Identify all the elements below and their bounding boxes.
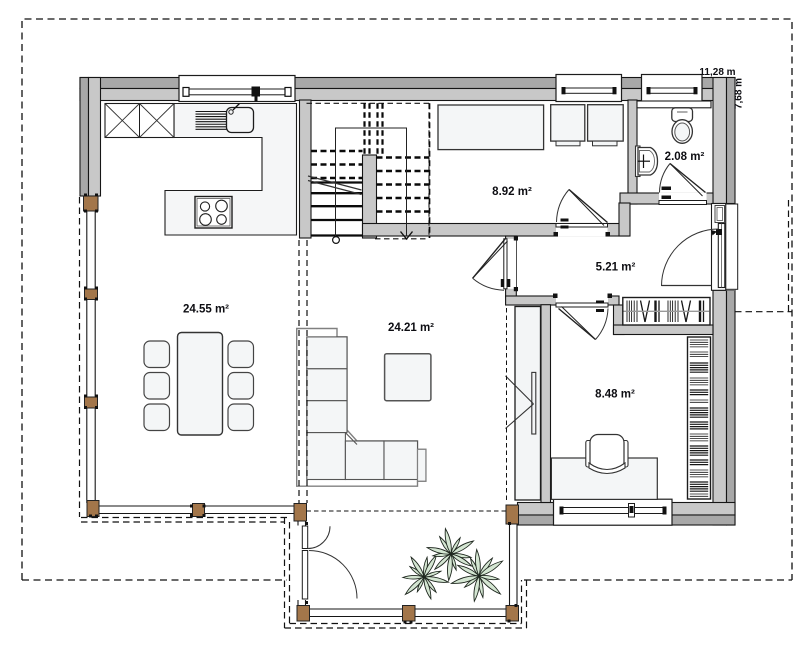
svg-text:8.48 m²: 8.48 m² xyxy=(595,389,635,401)
svg-text:8.92 m²: 8.92 m² xyxy=(492,186,532,198)
svg-text:5.21 m²: 5.21 m² xyxy=(596,262,636,274)
svg-text:24.21 m²: 24.21 m² xyxy=(388,322,434,334)
svg-text:7,68 m: 7,68 m xyxy=(734,78,745,109)
svg-text:24.55 m²: 24.55 m² xyxy=(183,304,229,316)
svg-text:11,28 m: 11,28 m xyxy=(699,67,735,78)
svg-text:2.08 m²: 2.08 m² xyxy=(665,151,705,163)
